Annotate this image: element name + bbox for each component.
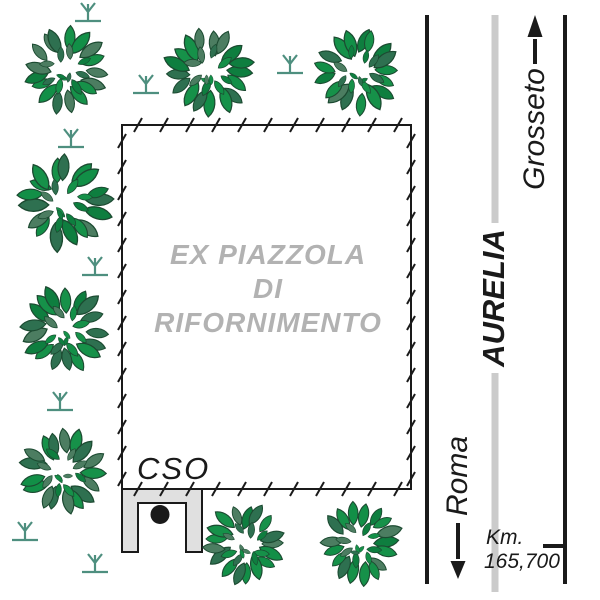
grass-icon (82, 554, 108, 572)
tree-icon (313, 27, 399, 116)
grass-icon (133, 75, 159, 93)
grass-icon (58, 129, 84, 147)
leaf (83, 204, 113, 223)
leaf (66, 72, 72, 83)
leaf (60, 288, 72, 314)
arrow-down-icon-head (451, 561, 466, 579)
leaf (362, 50, 370, 64)
site-plan: EX PIAZZOLA DI RIFORNIMENTO CSO Grosseto… (0, 0, 600, 600)
tree-icon (19, 428, 106, 515)
grass-icon (82, 257, 108, 275)
cso-dot (151, 505, 170, 524)
tree-icon (17, 154, 114, 253)
area-label-line2: DI (138, 272, 398, 306)
grass-icon (277, 55, 303, 73)
leaf (17, 188, 43, 200)
leaf (355, 93, 367, 117)
km-value: 165,700 (484, 550, 560, 574)
tree-icon (202, 503, 285, 587)
tree-icon (19, 284, 109, 373)
area-label-line3: RIFORNIMENTO (138, 306, 398, 340)
grass-icon (47, 392, 73, 410)
km-label: Km. (486, 526, 523, 550)
area-label: EX PIAZZOLA DI RIFORNIMENTO (138, 238, 398, 340)
leaf (86, 327, 109, 339)
leaf (44, 333, 58, 346)
destination-north-label: Grosseto (515, 29, 555, 229)
tree-icon (162, 28, 255, 117)
road-name-label: AURELIA (472, 223, 516, 373)
leaf (58, 428, 72, 454)
grass-icon (12, 522, 38, 540)
destination-south-label: Roma (438, 406, 478, 546)
tree-icon (23, 25, 108, 114)
area-label-line1: EX PIAZZOLA (138, 238, 398, 272)
tree-icon (320, 501, 404, 586)
leaf (349, 71, 359, 80)
leaf (63, 474, 73, 478)
cso-label: CSO (137, 451, 210, 487)
leaf (19, 199, 49, 212)
grass-icon (75, 3, 101, 21)
